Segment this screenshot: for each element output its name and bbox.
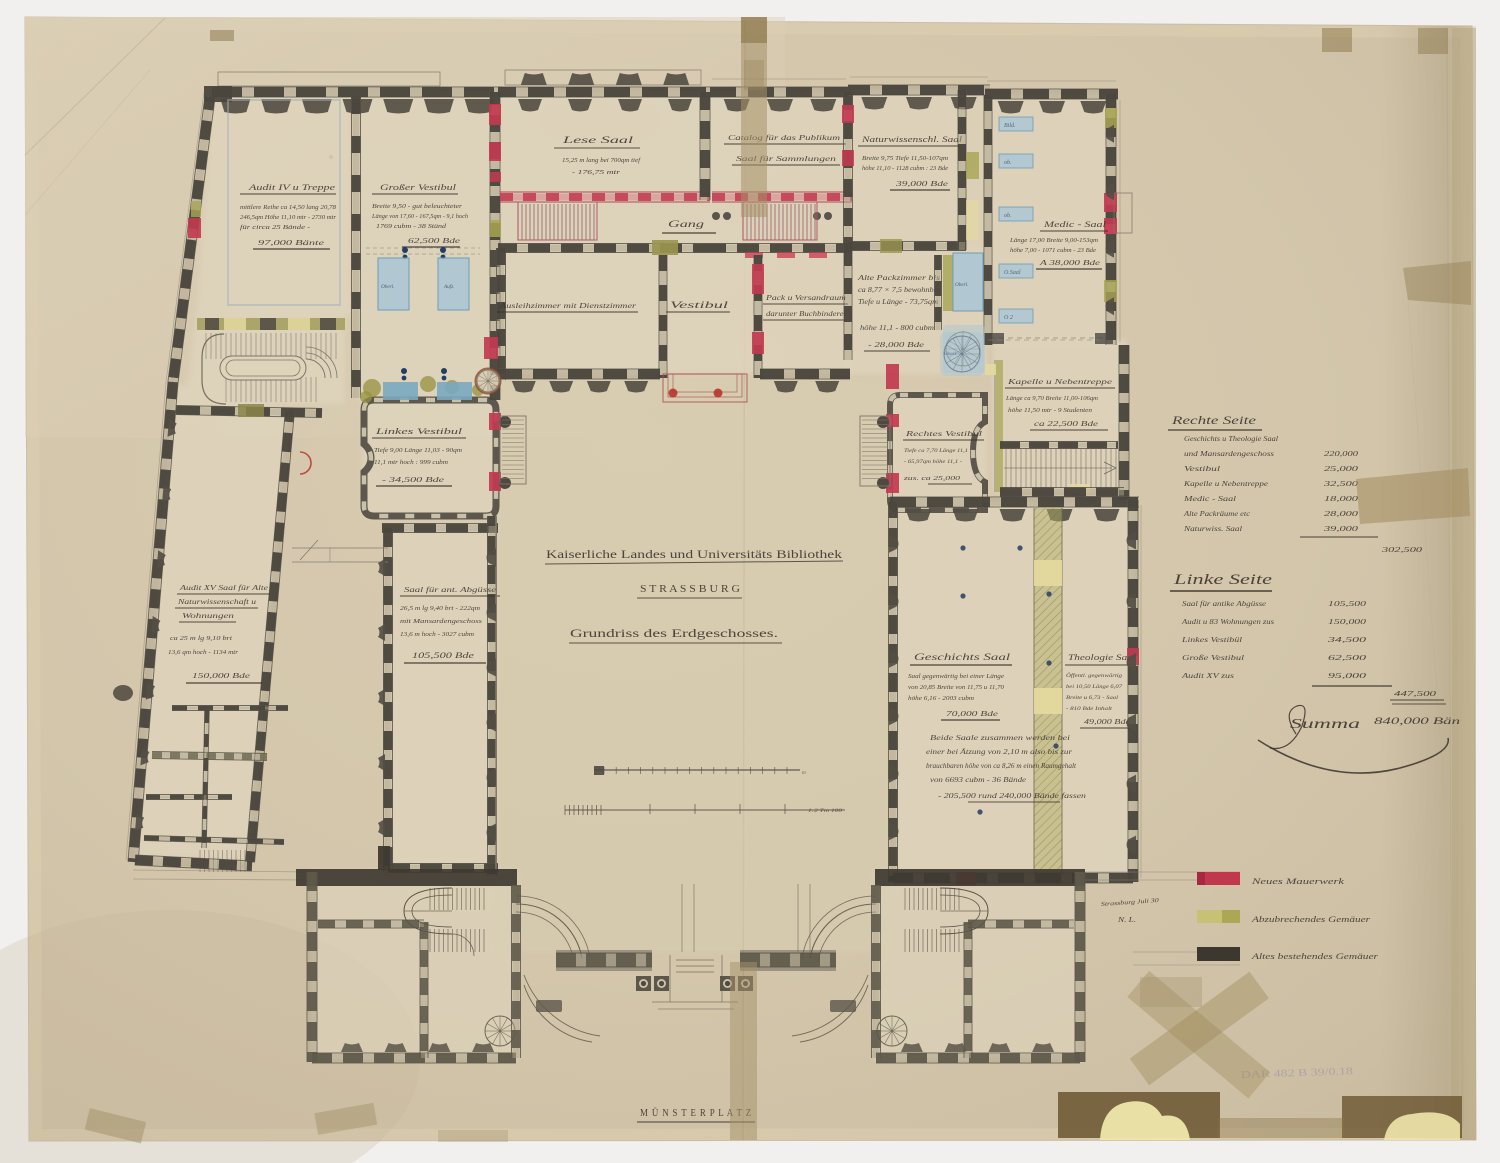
- svg-text:von 20,85 Breite von 11,75 u: von 20,85 Breite von 11,75 u 11,70: [908, 685, 1004, 691]
- svg-text:Linkes Vestibul: Linkes Vestibul: [374, 426, 463, 436]
- svg-text:Altes bestehendes Gemäuer: Altes bestehendes Gemäuer: [1251, 951, 1379, 961]
- svg-text:70,000 Bde: 70,000 Bde: [946, 709, 999, 718]
- svg-text:13,6 m hoch - 3027 cubm: 13,6 m hoch - 3027 cubm: [400, 632, 475, 638]
- svg-text:95,000: 95,000: [1328, 671, 1366, 680]
- svg-text:105,500: 105,500: [1328, 599, 1366, 608]
- svg-text:Kaiserliche Landes und Univers: Kaiserliche Landes und Universitäts Bibl…: [546, 547, 842, 561]
- svg-text:ob.: ob.: [1004, 160, 1012, 166]
- svg-text:- 810 Bde Inhalt: - 810 Bde Inhalt: [1066, 706, 1113, 712]
- svg-text:mittlere Reihe ca 14,50 lang 2: mittlere Reihe ca 14,50 lang 20,78: [240, 204, 336, 211]
- svg-text:220,000: 220,000: [1324, 451, 1359, 458]
- svg-text:Oberl.: Oberl.: [955, 282, 968, 288]
- svg-text:und Mansardengeschoss: und Mansardengeschoss: [1184, 451, 1274, 458]
- svg-text:Rechte Seite: Rechte Seite: [1170, 415, 1256, 427]
- svg-text:Naturwissenschaft u: Naturwissenschaft u: [177, 599, 257, 606]
- svg-text:Länge 17,00 Breite 9,00-153qm: Länge 17,00 Breite 9,00-153qm: [1009, 238, 1099, 244]
- svg-text:Tiefe u Länge - 73,75qm: Tiefe u Länge - 73,75qm: [858, 299, 938, 306]
- svg-text:- 65,97qm höhe 11,1 -: - 65,97qm höhe 11,1 -: [904, 459, 962, 465]
- svg-text:Beide Saale zusammen werden b: Beide Saale zusammen werden bei: [930, 733, 1070, 742]
- svg-text:Große Vestibul: Große Vestibul: [1182, 653, 1244, 662]
- svg-text:- 205,500 rund 240,000 Bände: - 205,500 rund 240,000 Bände fassen: [938, 791, 1086, 800]
- svg-text:150,000: 150,000: [1328, 617, 1366, 626]
- svg-text:105,500 Bde: 105,500 Bde: [412, 650, 474, 660]
- svg-text:Aufz.: Aufz.: [443, 283, 455, 290]
- svg-text:150,000 Bde: 150,000 Bde: [192, 671, 251, 680]
- svg-text:höhe 11,10 - 1128 cubm : 23 Bd: höhe 11,10 - 1128 cubm : 23 Bde: [862, 166, 948, 172]
- svg-text:ob.: ob.: [1004, 213, 1012, 219]
- svg-text:Vestibul: Vestibul: [670, 301, 729, 311]
- svg-text:Lese Saal: Lese Saal: [561, 136, 634, 146]
- svg-text:Neues Mauerwerk: Neues Mauerwerk: [1251, 876, 1345, 886]
- svg-text:32,500: 32,500: [1322, 481, 1359, 488]
- svg-text:Audit IV u Treppe: Audit IV u Treppe: [248, 182, 336, 192]
- svg-text:N. L.: N. L.: [1117, 915, 1136, 924]
- svg-text:höhe 11,50 mtr - 9 Studenten: höhe 11,50 mtr - 9 Studenten: [1008, 408, 1092, 414]
- svg-text:246,5qm Höhe 11,10 mtr - 273: 246,5qm Höhe 11,10 mtr - 2730 mtr: [240, 214, 337, 221]
- svg-text:brauchbaren höhe von ca 8,26 m: brauchbaren höhe von ca 8,26 m einen Rau…: [926, 763, 1077, 770]
- svg-text:m: m: [802, 770, 806, 776]
- svg-text:Geschichts u Theologie Saal: Geschichts u Theologie Saal: [1184, 436, 1278, 443]
- svg-text:Breite u 6,73 - Saal: Breite u 6,73 - Saal: [1066, 695, 1119, 701]
- svg-text:26,5 m lg 9,40 brt - 222qm: 26,5 m lg 9,40 brt - 222qm: [400, 605, 481, 612]
- svg-text:höhe 7,00 - 1071 cubm - 23 Bd: höhe 7,00 - 1071 cubm - 23 Bde: [1010, 248, 1096, 254]
- svg-text:Geschichts Saal: Geschichts Saal: [914, 653, 1011, 663]
- svg-text:39,000: 39,000: [1322, 526, 1359, 533]
- svg-text:Alte Packräume etc: Alte Packräume etc: [1183, 511, 1250, 518]
- svg-text:302,500: 302,500: [1380, 545, 1422, 554]
- svg-text:mit Mansardengeschoss: mit Mansardengeschoss: [400, 618, 483, 625]
- svg-text:Wohnungen: Wohnungen: [182, 613, 235, 620]
- svg-text:für circa 25 Bände -: für circa 25 Bände -: [240, 224, 310, 231]
- svg-text:Naturwissenschl. Saal: Naturwissenschl. Saal: [861, 134, 963, 144]
- svg-text:34,500: 34,500: [1326, 635, 1366, 644]
- svg-text:15,25 m lang bei 700qm tief: 15,25 m lang bei 700qm tief: [562, 157, 642, 164]
- svg-text:zus. ca 25,000: zus. ca 25,000: [902, 476, 960, 482]
- svg-text:840,000 Bän: 840,000 Bän: [1374, 717, 1460, 727]
- svg-text:Saal für ant. Abgüsse: Saal für ant. Abgüsse: [404, 585, 497, 594]
- svg-text:1769 cubm - 38 Stünd: 1769 cubm - 38 Stünd: [376, 224, 447, 230]
- svg-text:A 38,000 Bde: A 38,000 Bde: [1039, 258, 1101, 267]
- svg-text:Saal für antike Abgüsse: Saal für antike Abgüsse: [1182, 599, 1267, 608]
- svg-text:höhe 6,16 - 2003 cubm: höhe 6,16 - 2003 cubm: [908, 696, 975, 702]
- svg-text:- 28,000 Bde: - 28,000 Bde: [868, 340, 925, 349]
- svg-text:Pack u Versandraum: Pack u Versandraum: [765, 295, 846, 302]
- svg-text:Rechtes Vestibul: Rechtes Vestibul: [904, 429, 982, 438]
- svg-text:39,000 Bde: 39,000 Bde: [895, 179, 949, 188]
- svg-text:Audit u 83 Wohnungen zus: Audit u 83 Wohnungen zus: [1181, 617, 1274, 626]
- svg-text:ca 25 m lg 9,10 brt: ca 25 m lg 9,10 brt: [170, 636, 232, 642]
- svg-text:Großer Vestibul: Großer Vestibul: [380, 182, 457, 192]
- svg-text:S T R A S S B U R G: S T R A S S B U R G: [640, 584, 741, 595]
- svg-text:Vestibul: Vestibul: [1184, 466, 1220, 473]
- svg-text:Naturwiss. Saal: Naturwiss. Saal: [1183, 526, 1242, 533]
- svg-text:Länge ca 9,70 Breite 11,00-10: Länge ca 9,70 Breite 11,00-106qm: [1005, 396, 1099, 402]
- svg-text:Alte Packzimmer bis: Alte Packzimmer bis: [857, 275, 941, 282]
- svg-text:- 176,75 mtr: - 176,75 mtr: [572, 170, 621, 176]
- svg-text:darunter Buchbinderei: darunter Buchbinderei: [766, 311, 846, 318]
- svg-text:Kapelle u Nebentreppe: Kapelle u Nebentreppe: [1183, 481, 1268, 488]
- svg-text:11,1 mtr hoch : 999 cubm: 11,1 mtr hoch : 999 cubm: [374, 460, 449, 466]
- svg-text:Länge von 17,60 - 167,5qm - 9,: Länge von 17,60 - 167,5qm - 9,1 hoch: [371, 214, 468, 220]
- svg-text:- 34,500 Bde: - 34,500 Bde: [382, 475, 445, 484]
- svg-text:18,000: 18,000: [1324, 496, 1359, 503]
- svg-text:Öffentl. gegenwärtig: Öffentl. gegenwärtig: [1066, 671, 1122, 679]
- svg-text:bei 10,50 Länge 6,07: bei 10,50 Länge 6,07: [1066, 684, 1122, 690]
- svg-text:Audit XV Saal für Alte: Audit XV Saal für Alte: [179, 585, 268, 592]
- svg-text:ca 8,77 × 7,5 bewohnbar,: ca 8,77 × 7,5 bewohnbar,: [858, 287, 942, 294]
- svg-text:97,000 Bänte: 97,000 Bänte: [258, 238, 325, 247]
- svg-text:Breite 9,50 - gut beleuchteter: Breite 9,50 - gut beleuchteter: [372, 204, 463, 210]
- svg-text:höhe 11,1 - 800 cubm: höhe 11,1 - 800 cubm: [860, 325, 934, 332]
- svg-text:Grundriss des Erdgeschosses.: Grundriss des Erdgeschosses.: [570, 628, 778, 640]
- svg-text:Gang: Gang: [668, 220, 704, 230]
- svg-text:Tiefe ca 7,70 Länge 11,1: Tiefe ca 7,70 Länge 11,1: [904, 447, 968, 454]
- svg-text:Medic - Saal: Medic - Saal: [1183, 496, 1237, 503]
- svg-text:62,500: 62,500: [1328, 653, 1366, 662]
- svg-text:von 6693 cubm - 36 Bände: von 6693 cubm - 36 Bände: [930, 777, 1026, 784]
- svg-text:28,000: 28,000: [1324, 511, 1359, 518]
- svg-text:Medic - Saal: Medic - Saal: [1043, 219, 1107, 229]
- svg-text:Bild.: Bild.: [1004, 123, 1016, 129]
- svg-text:Linkes Vestibül: Linkes Vestibül: [1181, 635, 1242, 644]
- svg-text:25,000: 25,000: [1324, 466, 1359, 473]
- svg-text:Ausleihzimmer mit Dienstzimmer: Ausleihzimmer mit Dienstzimmer: [499, 301, 638, 310]
- svg-text:Audit XV zus: Audit XV zus: [1181, 671, 1234, 680]
- svg-text:62,500 Bde: 62,500 Bde: [408, 236, 461, 245]
- svg-text:einer bei Ätzung von 2,10 m: einer bei Ätzung von 2,10 m also bis zur: [926, 749, 1072, 756]
- svg-text:447,500: 447,500: [1394, 689, 1436, 698]
- svg-text:13,6 qm hoch - 1134 mtr: 13,6 qm hoch - 1134 mtr: [168, 649, 239, 656]
- svg-text:49,000 Bde: 49,000 Bde: [1084, 719, 1130, 726]
- svg-text:Breite 9,75 Tiefe 11,50-107qm: Breite 9,75 Tiefe 11,50-107qm: [862, 155, 949, 162]
- svg-text:ca 22,500 Bde: ca 22,500 Bde: [1034, 421, 1098, 428]
- svg-text:O.Saal: O.Saal: [1004, 270, 1021, 276]
- svg-text:Oberl.: Oberl.: [381, 284, 394, 290]
- svg-text:Saal gegenwärtig bei einer Län: Saal gegenwärtig bei einer Länge: [908, 674, 1004, 680]
- svg-text:Theologie Saal: Theologie Saal: [1068, 652, 1137, 662]
- svg-text:Abzubrechendes Gemäuer: Abzubrechendes Gemäuer: [1251, 914, 1371, 924]
- svg-text:O 2: O 2: [1004, 315, 1013, 321]
- svg-text:Tiefe 9,00 Länge 11,03 - 90qm: Tiefe 9,00 Länge 11,03 - 90qm: [374, 447, 463, 454]
- svg-text:1:2 Tm 100: 1:2 Tm 100: [808, 808, 843, 814]
- svg-text:Linke Seite: Linke Seite: [1172, 572, 1272, 588]
- svg-text:Kapelle u Nebentreppe: Kapelle u Nebentreppe: [1007, 377, 1113, 386]
